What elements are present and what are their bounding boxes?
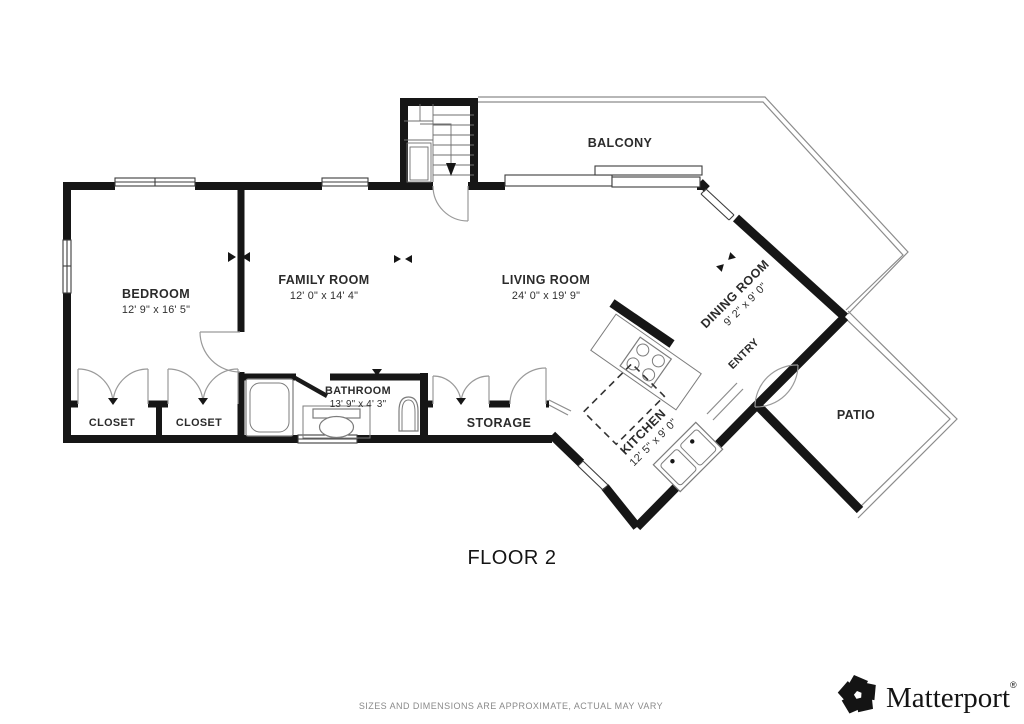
- floor-title: FLOOR 2: [467, 547, 556, 569]
- bedroom-label: BEDROOM: [122, 287, 190, 301]
- staircase: [404, 104, 474, 182]
- stairs-down-arrow: [446, 163, 456, 176]
- balcony-sliding-doors: [505, 166, 702, 187]
- bedroom-door: [200, 332, 240, 372]
- patio-label: PATIO: [837, 408, 875, 422]
- family-room-label: FAMILY ROOM: [278, 273, 369, 287]
- balcony-label: BALCONY: [588, 136, 653, 150]
- family-room-dims: 12' 0" x 14' 4": [290, 290, 358, 302]
- registered-mark: ®: [1010, 680, 1017, 690]
- entry-corridor-outline: [707, 383, 743, 420]
- bedroom-dims: 12' 9" x 16' 5": [122, 304, 190, 316]
- kitchen-diagonal-window: [578, 461, 608, 490]
- shower: [246, 379, 293, 436]
- entry-label: ENTRY: [726, 336, 762, 372]
- family-room-top-window: [322, 178, 368, 186]
- bathroom-sink: [399, 397, 418, 431]
- toilet: [303, 406, 370, 438]
- entry-label-group: ENTRY: [726, 336, 762, 372]
- floor-plan-page: BEDROOM 12' 9" x 16' 5" FAMILY ROOM 12' …: [0, 0, 1024, 724]
- floor-plan-drawing: BEDROOM 12' 9" x 16' 5" FAMILY ROOM 12' …: [0, 0, 1024, 724]
- closet-right-label: CLOSET: [176, 417, 222, 429]
- dining-diagonal-window: [701, 189, 734, 220]
- storage-corner-outline: [549, 400, 571, 415]
- stairs-door: [433, 186, 468, 221]
- matterport-logo-icon: [836, 675, 881, 718]
- bathroom-dims: 13' 9" x 4' 3": [330, 399, 387, 410]
- bedroom-left-window: [63, 240, 71, 293]
- matterport-logo: Matterport ®: [836, 675, 1017, 718]
- bedroom-top-window: [115, 178, 195, 186]
- dining-room-label-group: DINING ROOM 9' 2" x 9' 0": [698, 257, 782, 341]
- kitchen-fixtures: [584, 314, 723, 491]
- closet-left-label: CLOSET: [89, 417, 135, 429]
- bathroom-label: BATHROOM: [325, 385, 391, 397]
- disclaimer-text: SIZES AND DIMENSIONS ARE APPROXIMATE, AC…: [359, 701, 663, 711]
- storage-label: STORAGE: [467, 416, 531, 430]
- matterport-wordmark: Matterport: [886, 682, 1010, 714]
- living-room-label: LIVING ROOM: [502, 273, 590, 287]
- storage-door: [510, 368, 546, 404]
- living-room-dims: 24' 0" x 19' 9": [512, 290, 580, 302]
